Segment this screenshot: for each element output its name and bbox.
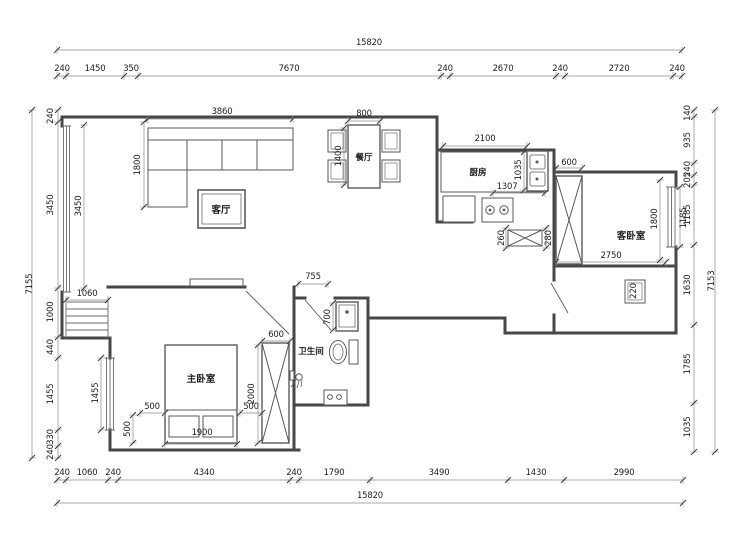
pillow [169,416,199,437]
pillow [203,416,233,437]
plan-drawing [0,0,740,550]
dining-table [348,125,380,188]
sofa [148,128,293,170]
tv-board [190,279,243,286]
kitchen-cabinet [443,196,475,222]
floorplan-canvas: 客厅 餐厅 厨房 卫生间 主卧室 客卧室 1582024014503507670… [0,0,740,550]
dimensions-layer [28,46,719,507]
shower-head [296,374,302,380]
sofa-chaise [148,170,187,207]
